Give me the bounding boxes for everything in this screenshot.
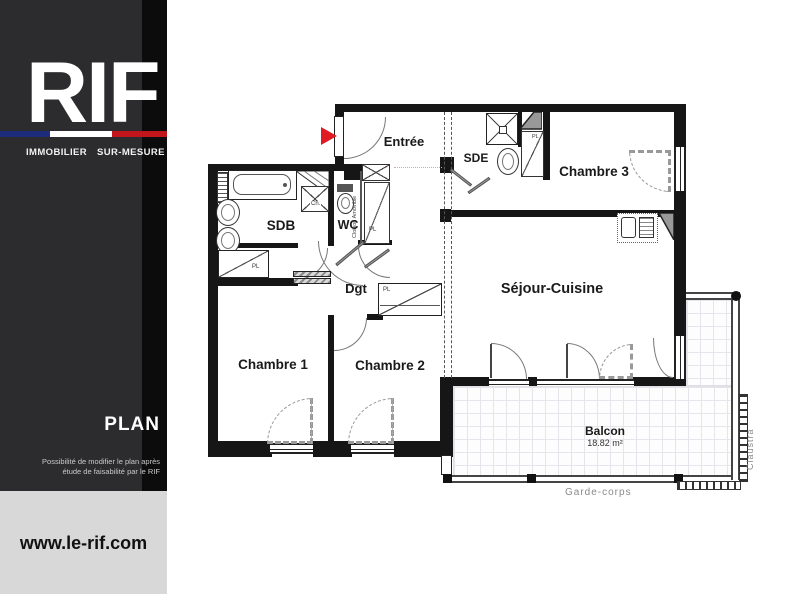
claustra-screen: [677, 481, 741, 490]
room-label-balcon: Balcon: [585, 424, 625, 438]
window: [270, 443, 313, 454]
door-swing: [567, 343, 600, 379]
window-leaf-dashed: [311, 398, 312, 444]
floor-plan-page: RIF IMMOBILIER SUR-MESURE PLAN Possibili…: [0, 0, 800, 600]
room-label-sdb: SDB: [267, 218, 296, 233]
window-swing-dashed: [267, 398, 313, 444]
balcony-pillar: [441, 455, 452, 475]
closet-label: PL: [383, 287, 390, 293]
washbasin-bowl: [502, 153, 514, 170]
room-label-wc: WC: [338, 218, 359, 232]
kitchen-sink-icon: [621, 217, 636, 238]
bathtub-drain: [283, 183, 287, 187]
wall-segment: [440, 377, 453, 457]
window-leaf-dashed: [392, 398, 393, 444]
toilet-tank: [337, 184, 353, 192]
flag-red-segment: [112, 131, 167, 137]
window: [674, 336, 686, 379]
room-label-dgt: Dgt: [345, 281, 367, 296]
closet-label: PL: [252, 264, 259, 270]
flag-white-segment: [50, 131, 112, 137]
door-swing: [491, 343, 527, 379]
entrance-door-swing: [344, 117, 386, 159]
closet-box: [218, 250, 269, 278]
kitchen-duct-icon: [659, 213, 674, 240]
sidebar-note-line2: étude de faisabilité par le RIF: [0, 467, 160, 477]
wall-segment: [208, 278, 298, 286]
water-heater-label: Ch.: [310, 201, 321, 207]
balcony-floor: [686, 299, 734, 386]
closet-label: PL: [532, 134, 539, 140]
balcony-area-label: 18.82 m²: [587, 438, 623, 448]
removable-partition-line: [444, 112, 445, 378]
website-url: www.le-rif.com: [0, 533, 167, 554]
door-swing-dashed: [599, 344, 633, 379]
room-label-sejour: Séjour-Cuisine: [501, 281, 603, 297]
appliance-box-icon: [362, 164, 390, 181]
sidebar-note-line1: Possibilité de modifier le plan après: [0, 457, 160, 467]
room-label-sde: SDE: [464, 151, 489, 165]
window-swing-dashed: [348, 398, 394, 444]
room-label-chambre1: Chambre 1: [238, 357, 308, 372]
wall-segment: [336, 104, 686, 112]
railing: [686, 292, 736, 300]
sliding-door-leaf: [293, 278, 331, 284]
alignment-dotted-line: [394, 167, 442, 168]
railing-post: [731, 291, 741, 301]
railing-label: Garde-corps: [565, 487, 632, 498]
wall-segment: [440, 209, 451, 222]
removable-partition-line: [451, 112, 452, 378]
washbasin-bowl: [221, 204, 235, 221]
claustra-label: Claustra: [745, 428, 755, 470]
window-swing: [653, 338, 673, 378]
toilet-bowl: [341, 197, 350, 209]
shower-drain: [499, 126, 507, 134]
kitchen-drainer-icon: [639, 217, 654, 238]
flag-bar: [0, 131, 167, 137]
room-label-chambre2: Chambre 2: [355, 358, 425, 373]
flag-blue-segment: [0, 131, 50, 137]
railing-post: [527, 474, 536, 483]
room-label-entree: Entrée: [384, 134, 424, 149]
room-label-chambre3: Chambre 3: [559, 164, 629, 179]
door-swing: [334, 318, 367, 351]
wall-segment: [313, 441, 352, 457]
vent-duct-icon: [520, 112, 542, 131]
window-swing-dashed: [629, 150, 671, 192]
closet-shelf-line: [380, 305, 440, 306]
removable-partition-wall: [360, 171, 362, 243]
rif-logo: RIF: [26, 50, 159, 136]
closet-box: [364, 182, 390, 244]
water-heater-icon: [301, 186, 329, 212]
railing-post: [443, 474, 452, 483]
washbasin-bowl: [221, 232, 235, 249]
sidebar-note: Possibilité de modifier le plan après ét…: [0, 457, 160, 477]
sliding-door-leaf: [293, 271, 331, 277]
pivot-door-leaf: [450, 168, 472, 186]
wall-segment: [543, 104, 550, 180]
plan-section-title: PLAN: [0, 414, 160, 436]
wall-segment: [208, 441, 272, 457]
window: [351, 443, 394, 454]
entrance-arrow-icon: [321, 127, 337, 145]
window: [674, 147, 686, 191]
closet-label: PL: [369, 227, 376, 233]
logo-tagline: IMMOBILIER SUR-MESURE: [26, 147, 165, 158]
